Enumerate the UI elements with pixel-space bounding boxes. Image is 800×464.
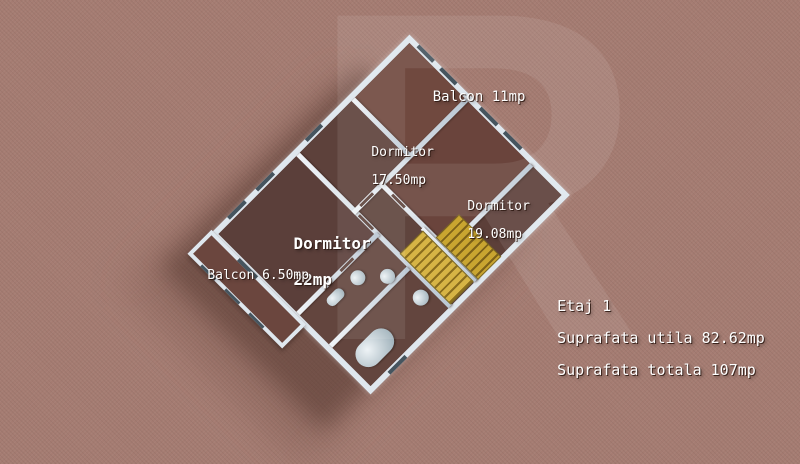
floor-info-block: Etaj 1 Suprafata utila 82.62mp Suprafata… (521, 282, 765, 394)
room-name: Dormitor (371, 145, 434, 160)
room-label-dormitor-1908: Dormitor 19.08mp (436, 186, 530, 256)
room-label-dormitor-1750: Dormitor 17.50mp (340, 132, 434, 202)
room-label-balcon-650: Balcon 6.50mp (176, 255, 309, 297)
floor-name: Etaj 1 (557, 297, 611, 315)
room-name: Dormitor (467, 199, 530, 214)
floor-plan-scene: R Balcon 11mp Dormitor 17.50mp Dormitor … (0, 0, 800, 464)
total-area-text: Suprafata totala 107mp (557, 361, 756, 379)
room-label-text: Balcon 11mp (433, 89, 526, 105)
room-label-balcon-11: Balcon 11mp (399, 76, 525, 118)
room-area: 19.08mp (467, 227, 522, 242)
usable-area-text: Suprafata utila 82.62mp (557, 329, 765, 347)
room-area: 17.50mp (371, 173, 426, 188)
room-label-text: Balcon 6.50mp (207, 268, 309, 283)
room-name: Dormitor (294, 234, 371, 253)
